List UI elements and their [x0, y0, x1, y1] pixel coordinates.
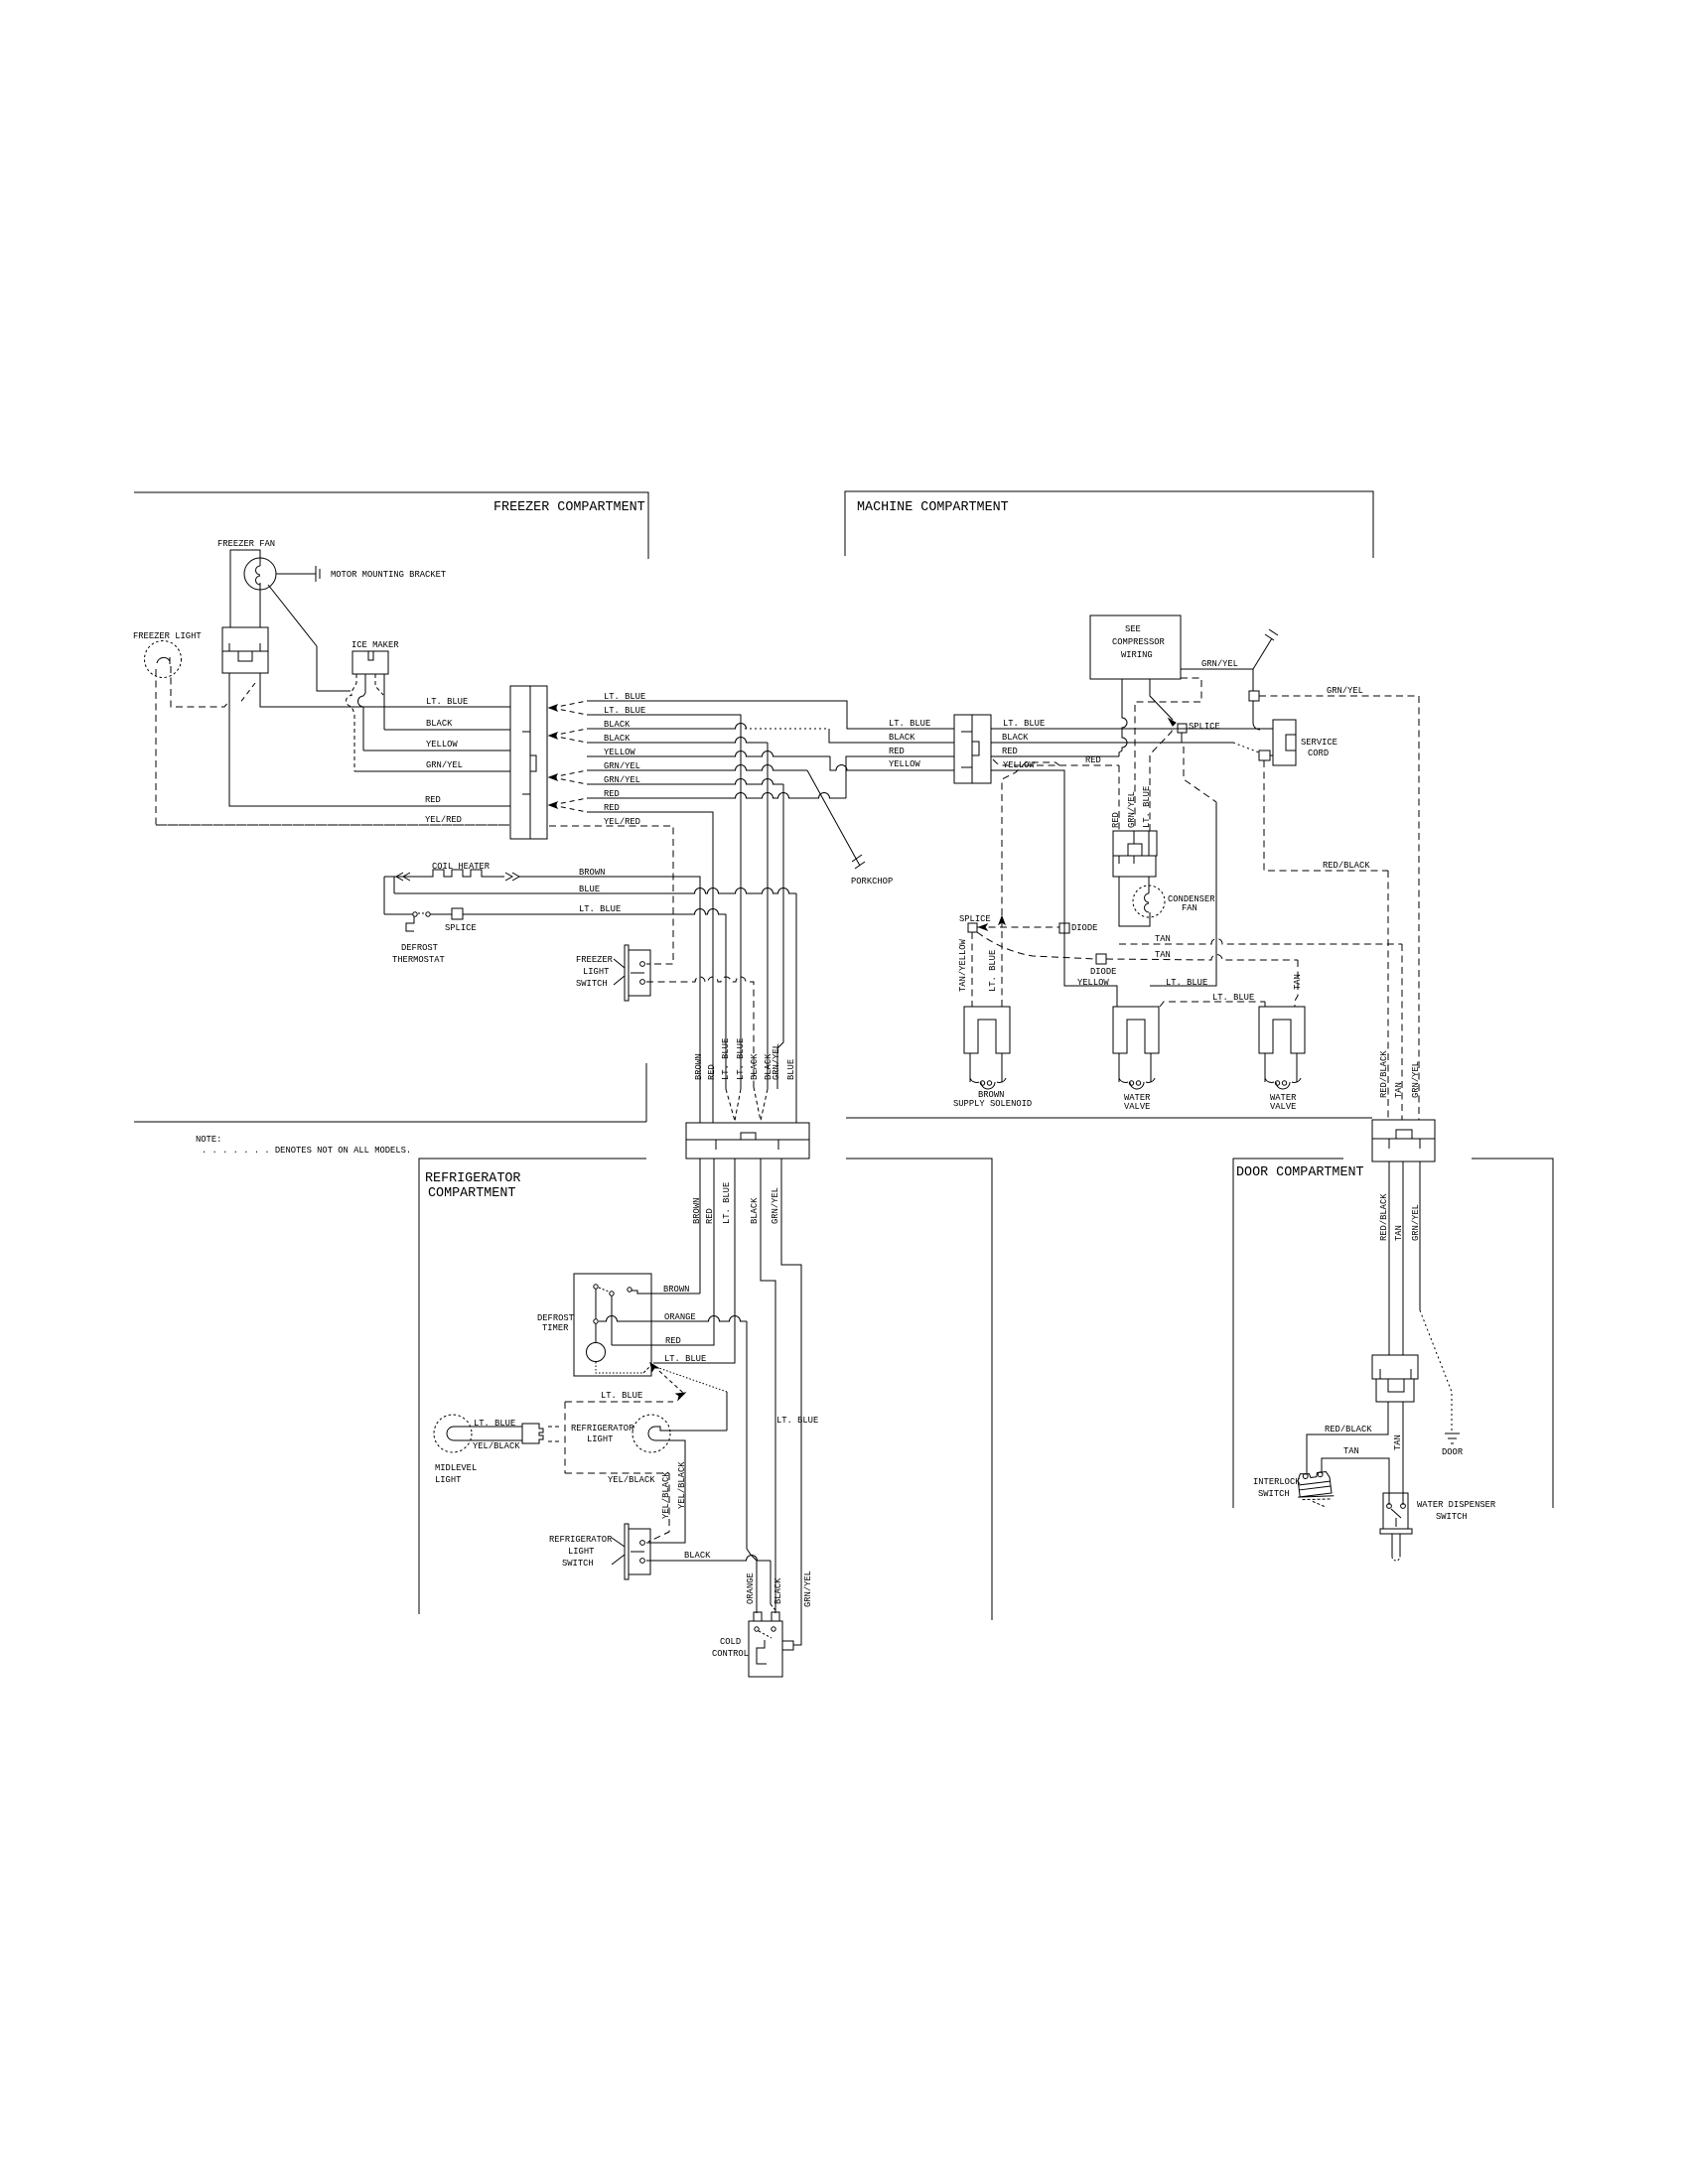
svg-text:TAN: TAN — [1155, 934, 1171, 944]
svg-text:RED/BLACK: RED/BLACK — [1379, 1050, 1389, 1098]
svg-text:RED: RED — [1002, 747, 1018, 756]
svg-text:GRN/YEL: GRN/YEL — [1127, 791, 1137, 828]
svg-text:FREEZER COMPARTMENT: FREEZER COMPARTMENT — [493, 500, 645, 515]
svg-text:RED: RED — [604, 803, 620, 813]
svg-text:DEFROST: DEFROST — [537, 1313, 574, 1323]
svg-text:TAN/YELLOW: TAN/YELLOW — [958, 938, 968, 992]
svg-text:TAN: TAN — [1155, 950, 1171, 960]
svg-text:MACHINE COMPARTMENT: MACHINE COMPARTMENT — [857, 500, 1009, 515]
svg-text:GRN/YEL: GRN/YEL — [1201, 659, 1238, 669]
svg-text:GRN/YEL: GRN/YEL — [771, 1187, 780, 1224]
svg-text:BLACK: BLACK — [604, 734, 631, 744]
svg-text:BLACK: BLACK — [1002, 733, 1029, 743]
svg-text:BLACK: BLACK — [750, 1053, 760, 1080]
svg-text:GRN/YEL: GRN/YEL — [604, 761, 640, 771]
svg-text:LIGHT: LIGHT — [587, 1434, 613, 1444]
svg-text:TAN: TAN — [1343, 1446, 1359, 1456]
svg-text:LT. BLUE: LT. BLUE — [1003, 719, 1045, 729]
svg-text:BLACK: BLACK — [750, 1197, 760, 1224]
svg-text:FAN: FAN — [1182, 903, 1197, 913]
svg-text:SERVICE: SERVICE — [1301, 738, 1337, 748]
svg-text:SWITCH: SWITCH — [1258, 1489, 1290, 1499]
svg-text:YEL/BLACK: YEL/BLACK — [677, 1461, 687, 1509]
svg-text:YEL/BLACK: YEL/BLACK — [661, 1471, 671, 1519]
svg-text:YELLOW: YELLOW — [889, 759, 920, 769]
svg-text:RED: RED — [889, 747, 905, 756]
svg-text:ORANGE: ORANGE — [746, 1572, 756, 1604]
svg-text:RED: RED — [604, 789, 620, 799]
svg-text:LT. BLUE: LT. BLUE — [988, 950, 998, 992]
svg-text:SPLICE: SPLICE — [1189, 722, 1220, 732]
svg-text:GRN/YEL: GRN/YEL — [803, 1570, 813, 1607]
svg-text:LT. BLUE: LT. BLUE — [721, 1038, 731, 1080]
svg-text:RED/BLACK: RED/BLACK — [1325, 1425, 1372, 1434]
svg-text:RED: RED — [665, 1336, 681, 1346]
svg-text:BLACK: BLACK — [426, 719, 453, 729]
svg-text:BLACK: BLACK — [889, 733, 915, 743]
svg-text:VALVE: VALVE — [1124, 1102, 1150, 1112]
svg-text:GRN/YEL: GRN/YEL — [604, 775, 640, 785]
svg-text:WIRING: WIRING — [1121, 650, 1153, 660]
svg-text:DEFROST: DEFROST — [401, 943, 438, 953]
svg-text:RED/BLACK: RED/BLACK — [1323, 861, 1370, 871]
svg-text:SPLICE: SPLICE — [445, 923, 477, 933]
svg-text:BLUE: BLUE — [786, 1059, 796, 1080]
svg-text:LT. BLUE: LT. BLUE — [604, 706, 645, 716]
svg-text:TAN: TAN — [1394, 1225, 1404, 1241]
svg-text:BROWN: BROWN — [692, 1198, 702, 1224]
svg-text:FREEZER FAN: FREEZER FAN — [217, 539, 275, 549]
svg-text:TIMER: TIMER — [542, 1323, 569, 1333]
svg-text:BLUE: BLUE — [579, 885, 600, 894]
svg-text:BROWN: BROWN — [663, 1285, 689, 1295]
svg-text:RED: RED — [1111, 812, 1121, 828]
svg-text:DIODE: DIODE — [1090, 967, 1116, 977]
svg-text:LT. BLUE: LT. BLUE — [736, 1038, 746, 1080]
svg-text:ORANGE: ORANGE — [664, 1312, 696, 1322]
svg-text:BLACK: BLACK — [604, 720, 631, 730]
svg-text:YEL/RED: YEL/RED — [425, 815, 462, 825]
svg-text:LT. BLUE: LT. BLUE — [426, 697, 468, 707]
svg-text:NOTE:: NOTE: — [196, 1135, 221, 1145]
svg-text:LT. BLUE: LT. BLUE — [579, 904, 621, 914]
svg-text:GRN/YEL: GRN/YEL — [1327, 686, 1363, 696]
svg-text:YELLOW: YELLOW — [426, 740, 458, 750]
svg-text:GRN/YEL: GRN/YEL — [426, 760, 463, 770]
svg-text:LT. BLUE: LT. BLUE — [1142, 786, 1152, 828]
svg-text:LT. BLUE: LT. BLUE — [1212, 993, 1254, 1003]
svg-text:WATER DISPENSER: WATER DISPENSER — [1417, 1500, 1496, 1510]
svg-text:LIGHT: LIGHT — [568, 1547, 594, 1557]
svg-text:MOTOR MOUNTING BRACKET: MOTOR MOUNTING BRACKET — [331, 570, 446, 580]
svg-text:LIGHT: LIGHT — [435, 1475, 461, 1485]
svg-text:RED: RED — [1085, 755, 1101, 765]
svg-text:SWITCH: SWITCH — [1436, 1512, 1468, 1522]
svg-text:GRN/YEL: GRN/YEL — [1411, 1204, 1421, 1241]
svg-text:ICE MAKER: ICE MAKER — [352, 640, 399, 650]
svg-text:TAN: TAN — [1393, 1434, 1403, 1450]
svg-text:LT. BLUE: LT. BLUE — [604, 692, 645, 702]
svg-text:LT. BLUE: LT. BLUE — [722, 1182, 732, 1224]
svg-text:RED: RED — [707, 1064, 717, 1080]
svg-text:REFRIGERATOR: REFRIGERATOR — [425, 1171, 520, 1186]
svg-text:FREEZER: FREEZER — [576, 955, 614, 965]
svg-text:LIGHT: LIGHT — [583, 967, 609, 977]
svg-text:DIODE: DIODE — [1071, 923, 1097, 933]
svg-text:RED/BLACK: RED/BLACK — [1379, 1193, 1389, 1241]
svg-text:BROWN: BROWN — [579, 868, 605, 878]
svg-text:GRN/YEL: GRN/YEL — [772, 1043, 781, 1080]
svg-text:SWITCH: SWITCH — [562, 1559, 594, 1569]
svg-text:CONTROL: CONTROL — [712, 1649, 749, 1659]
svg-text:. . . . . . . DENOTES NOT ON A: . . . . . . . DENOTES NOT ON ALL MODELS. — [202, 1146, 411, 1156]
svg-text:INTERLOCK: INTERLOCK — [1253, 1477, 1301, 1487]
svg-text:YEL/BLACK: YEL/BLACK — [473, 1441, 520, 1451]
svg-text:MIDLEVEL: MIDLEVEL — [435, 1463, 477, 1473]
svg-text:TAN: TAN — [1394, 1082, 1404, 1098]
svg-text:REFRIGERATOR: REFRIGERATOR — [571, 1424, 634, 1433]
svg-text:FREEZER LIGHT: FREEZER LIGHT — [133, 631, 202, 641]
svg-text:TAN: TAN — [1293, 974, 1303, 990]
svg-text:YEL/BLACK: YEL/BLACK — [608, 1475, 655, 1485]
svg-text:RED: RED — [425, 795, 441, 805]
svg-text:CORD: CORD — [1308, 749, 1329, 758]
svg-text:REFRIGERATOR: REFRIGERATOR — [549, 1535, 613, 1545]
svg-text:COMPARTMENT: COMPARTMENT — [428, 1186, 515, 1201]
svg-text:BROWN: BROWN — [694, 1054, 704, 1080]
svg-text:BLACK: BLACK — [774, 1577, 783, 1604]
svg-text:COMPRESSOR: COMPRESSOR — [1112, 637, 1166, 647]
svg-text:LT. BLUE: LT. BLUE — [889, 719, 930, 729]
svg-text:LT. BLUE: LT. BLUE — [664, 1354, 706, 1364]
svg-text:COLD: COLD — [720, 1637, 741, 1647]
svg-text:YELLOW: YELLOW — [1077, 978, 1109, 988]
svg-text:YELLOW: YELLOW — [604, 748, 635, 757]
svg-text:LT. BLUE: LT. BLUE — [474, 1419, 515, 1429]
svg-text:SEE: SEE — [1125, 624, 1141, 634]
svg-text:PORKCHOP: PORKCHOP — [851, 877, 893, 887]
svg-text:YEL/RED: YEL/RED — [604, 817, 640, 827]
svg-text:RED: RED — [705, 1208, 715, 1224]
svg-text:LT. BLUE: LT. BLUE — [601, 1391, 642, 1401]
svg-text:DOOR: DOOR — [1442, 1447, 1464, 1457]
svg-text:DOOR COMPARTMENT: DOOR COMPARTMENT — [1236, 1165, 1364, 1180]
svg-text:SWITCH: SWITCH — [576, 979, 608, 989]
svg-text:LT. BLUE: LT. BLUE — [776, 1416, 818, 1426]
svg-text:THERMOSTAT: THERMOSTAT — [392, 955, 445, 965]
svg-text:GRN/YEL: GRN/YEL — [1411, 1061, 1421, 1098]
svg-text:BLACK: BLACK — [684, 1551, 711, 1561]
svg-text:VALVE: VALVE — [1270, 1102, 1296, 1112]
svg-text:SUPPLY SOLENOID: SUPPLY SOLENOID — [953, 1099, 1032, 1109]
